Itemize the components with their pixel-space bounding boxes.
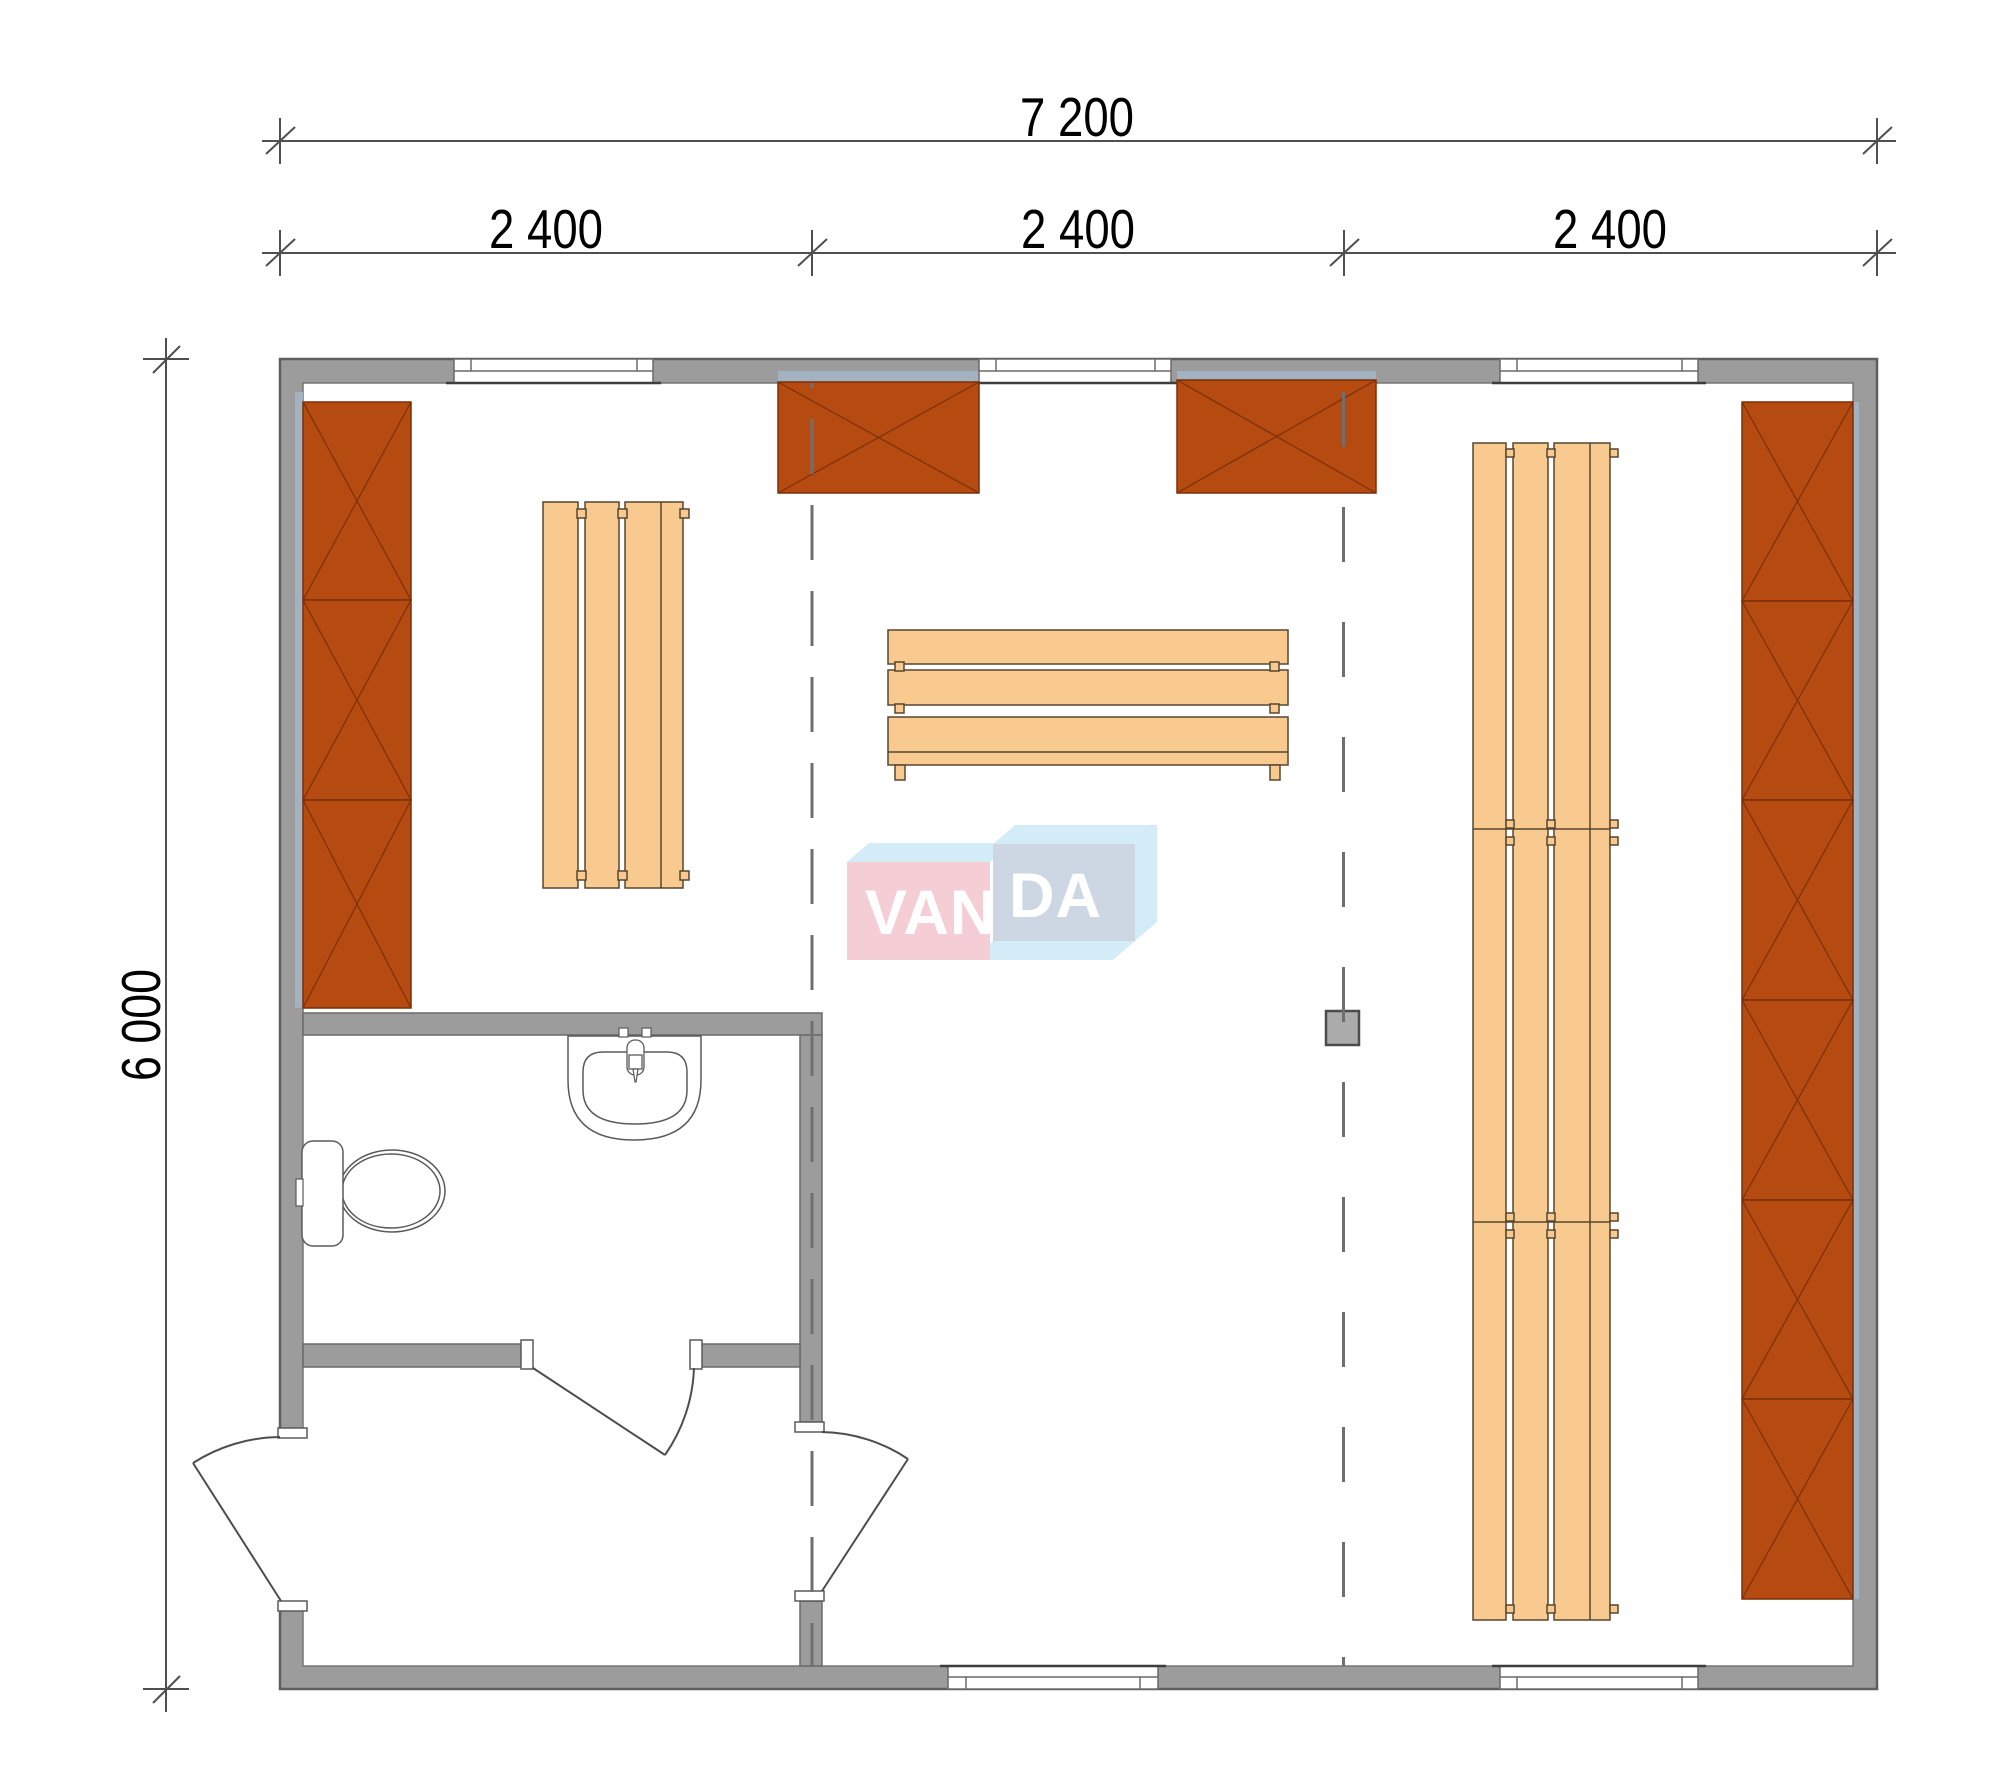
svg-text:DA: DA bbox=[1009, 861, 1102, 931]
svg-text:2 400: 2 400 bbox=[489, 198, 603, 260]
svg-text:6 000: 6 000 bbox=[110, 969, 172, 1081]
svg-text:7 200: 7 200 bbox=[1020, 86, 1134, 148]
svg-text:VAN: VAN bbox=[865, 878, 996, 948]
svg-text:2 400: 2 400 bbox=[1021, 198, 1135, 260]
svg-text:2 400: 2 400 bbox=[1553, 198, 1667, 260]
